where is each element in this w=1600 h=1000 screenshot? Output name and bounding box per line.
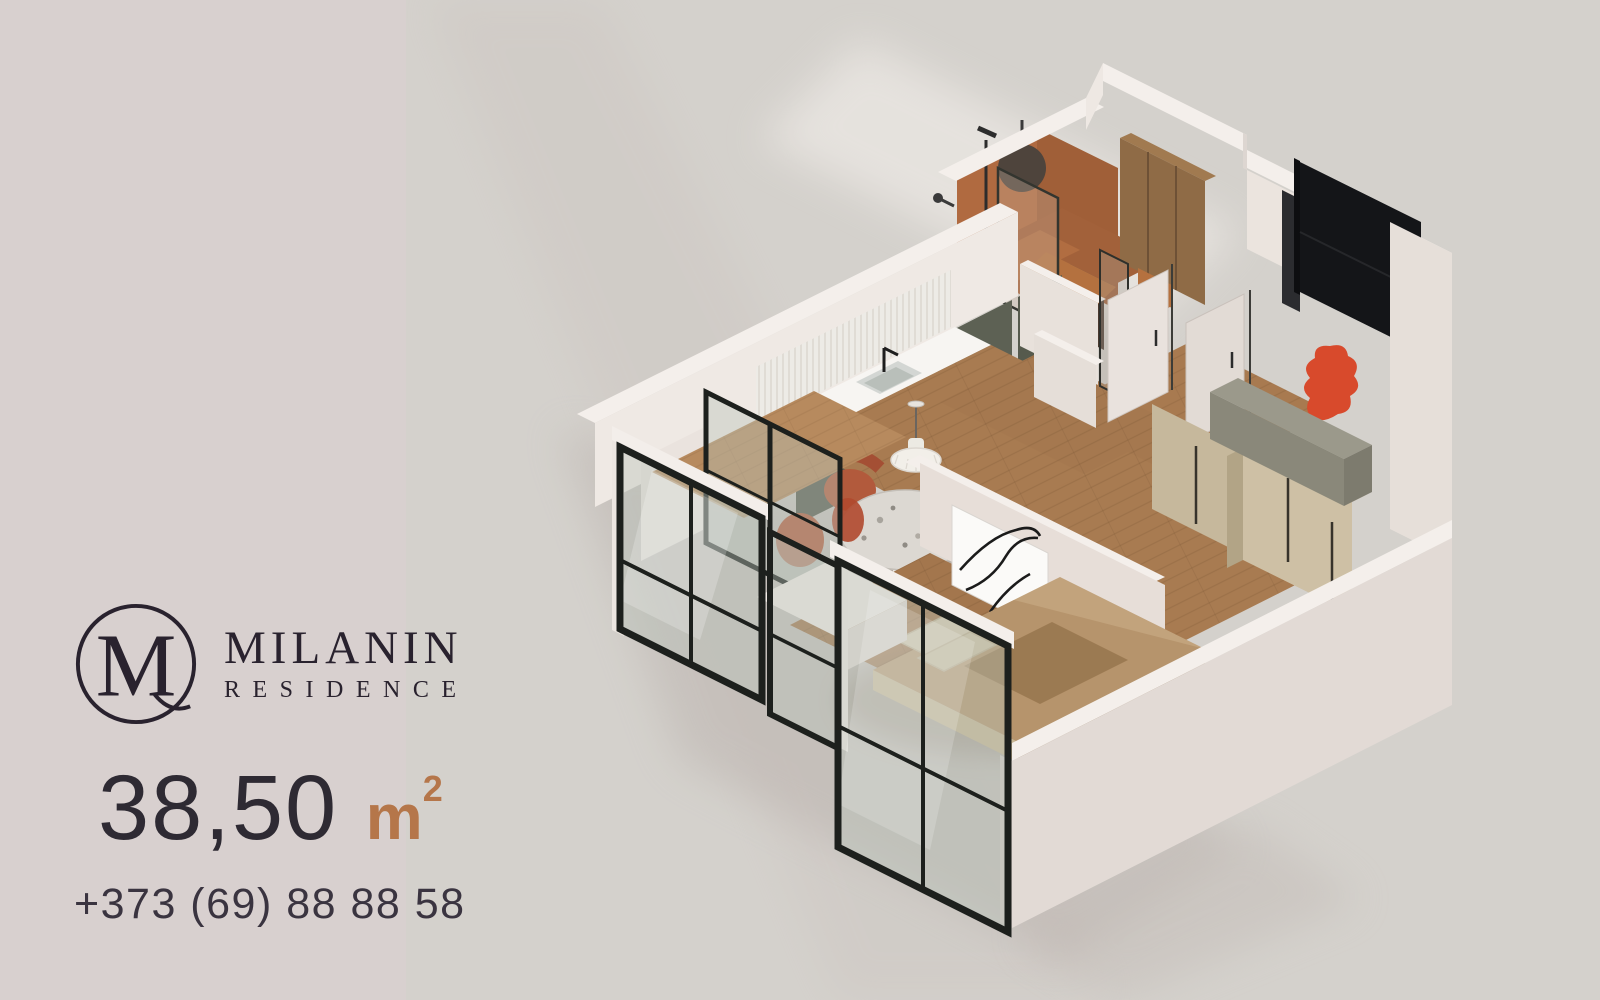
logo-monogram: M: [96, 615, 177, 716]
brand-subname: RESIDENCE: [224, 677, 469, 704]
info-panel: M MILANIN RESIDENCE 38,50 m2 +373 (69) 8…: [72, 600, 469, 929]
wall-end-right: [1390, 222, 1452, 560]
area-unit-exp: 2: [423, 768, 443, 809]
phone-number: +373 (69) 88 88 58: [74, 880, 469, 929]
brand-lockup: M MILANIN RESIDENCE: [72, 600, 469, 728]
brand-logo: M: [72, 600, 200, 728]
terrazzo-speckle: [902, 542, 907, 547]
terrazzo-speckle: [877, 517, 883, 523]
window-2: [770, 532, 838, 748]
wall-step: [1243, 133, 1247, 170]
terrazzo-speckle: [891, 506, 896, 511]
area-unit-base: m: [366, 781, 423, 853]
door-frame-black: [1294, 158, 1300, 295]
area-value: 38,50 m2: [98, 762, 469, 854]
wardrobe-side: [1227, 448, 1243, 568]
area-number: 38,50: [98, 757, 338, 859]
area-unit: m2: [366, 781, 443, 853]
brand-name: MILANIN: [224, 624, 469, 673]
brand-text: MILANIN RESIDENCE: [224, 624, 469, 704]
terrazzo-speckle: [915, 533, 921, 539]
terrazzo-speckle: [861, 535, 866, 540]
pendant-canopy: [908, 401, 924, 407]
